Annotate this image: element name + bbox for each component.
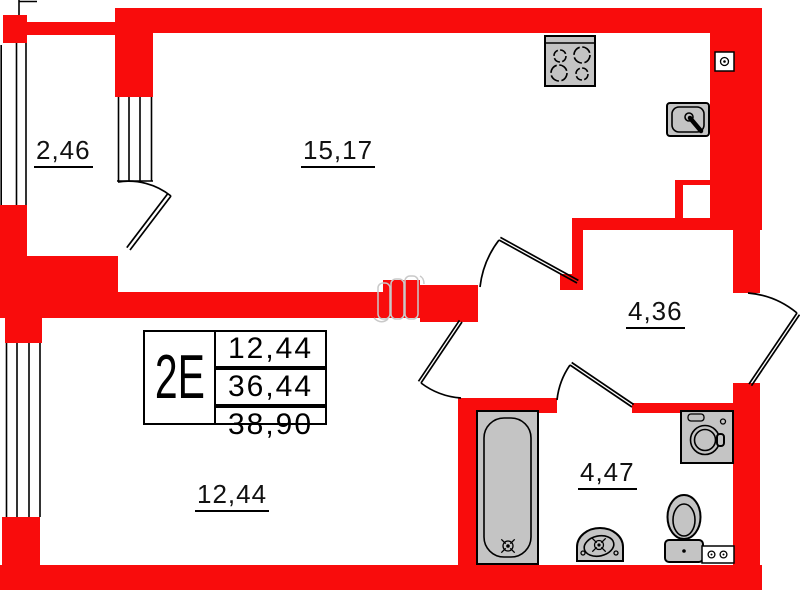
outlet-icon: [715, 52, 734, 71]
wall-segment: [710, 8, 762, 230]
wall-segment: [115, 8, 760, 33]
door-leaf: [570, 365, 632, 407]
wall-segment: [3, 15, 27, 43]
door-leaf: [127, 194, 168, 248]
bathroom-door: [557, 363, 634, 408]
unit-id: 2E: [154, 342, 204, 413]
door-leaf: [419, 320, 460, 381]
floor-plan: 2,46 15,17 4,36 4,47 12,44 2E 12,44 36,4…: [0, 0, 800, 600]
living-room-area-label: 12,44: [195, 481, 269, 512]
toilet-icon: [665, 495, 703, 562]
wall-segment: [115, 8, 153, 97]
door-swing-arc: [748, 293, 797, 313]
wall-segment: [0, 565, 762, 590]
living-room-door: [419, 320, 463, 398]
wall-segment: [572, 218, 583, 283]
total-area-value: 38,90: [216, 408, 325, 442]
balcony-door: [118, 181, 171, 250]
door-leaf: [130, 196, 171, 250]
door-swing-arc: [421, 383, 461, 398]
wall-segment: [733, 383, 760, 585]
door-swing-arc: [118, 181, 171, 196]
bathtub-icon: [477, 411, 538, 564]
unit-areas-column: 12,44 36,44 38,90: [216, 332, 325, 423]
door-leaf: [572, 363, 634, 405]
wall-segment: [420, 285, 478, 322]
unit-id-cell: 2E: [145, 332, 216, 423]
washing-machine-icon: [681, 411, 733, 463]
kitchen-area-label: 15,17: [301, 137, 375, 168]
wall-segment: [733, 230, 760, 293]
kitchen-balcony-window: [117, 97, 153, 181]
wall-segment: [118, 292, 383, 318]
wall-segment: [675, 180, 710, 185]
door-swing-arc: [557, 365, 570, 400]
stove-icon: [545, 36, 595, 86]
washbasin-icon: [577, 528, 623, 561]
hallway-area-label: 4,36: [626, 298, 685, 329]
living-area-value: 12,44: [216, 332, 325, 370]
door-leaf: [421, 322, 462, 383]
wall-segment: [5, 290, 42, 343]
unit-info-table: 2E 12,44 36,44 38,90: [143, 330, 327, 425]
wall-segment: [383, 280, 420, 318]
wall-segment: [27, 22, 115, 35]
kitchen-sink-icon: [667, 103, 709, 136]
balcony-area-label: 2,46: [34, 137, 93, 168]
living-room-window: [7, 343, 41, 517]
door-leaf: [752, 315, 800, 386]
wall-segment: [572, 218, 733, 230]
door-leaf: [500, 237, 578, 280]
door-leaf: [499, 240, 577, 283]
apartment-area-value: 36,44: [216, 370, 325, 408]
entrance-door: [748, 293, 800, 386]
socket-icon: [702, 546, 734, 563]
bathroom-area-label: 4,47: [578, 459, 637, 490]
door-swing-arc: [480, 240, 499, 287]
door-leaf: [749, 313, 797, 384]
